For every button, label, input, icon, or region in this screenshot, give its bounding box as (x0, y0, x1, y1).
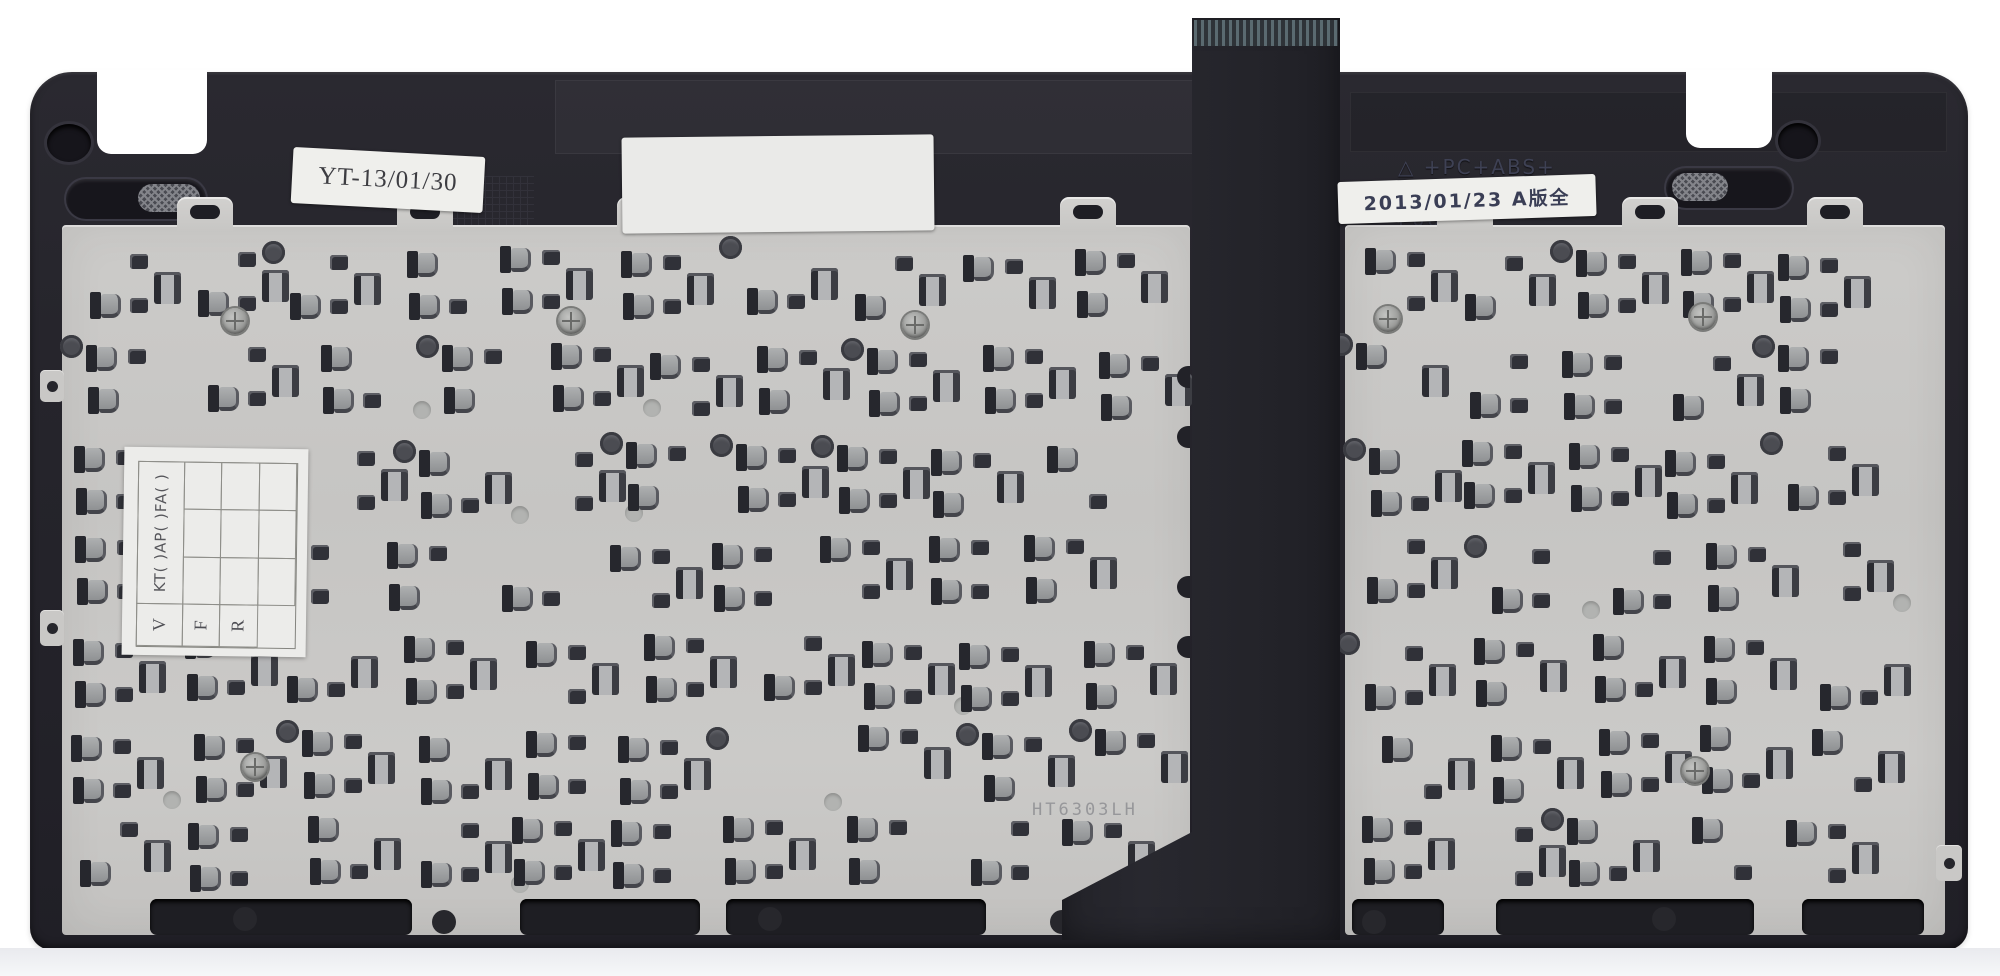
plate-hole (485, 472, 512, 504)
plate-hole (1024, 737, 1042, 752)
plate-hole (839, 487, 873, 515)
plate-hole (196, 776, 230, 804)
plate-hole (1852, 842, 1879, 874)
plate-hole (421, 861, 455, 889)
plate-hole (1077, 291, 1111, 319)
plate-hole (248, 347, 266, 362)
plate-hole (1141, 356, 1159, 371)
plate-hole (1048, 755, 1075, 787)
plate-hole (1075, 249, 1109, 277)
plate-rivet (841, 338, 864, 361)
plate-hole (551, 343, 585, 371)
plate-hole (971, 584, 989, 599)
plate-hole (444, 387, 478, 415)
plate-hole (73, 777, 107, 805)
plate-hole (1780, 296, 1814, 324)
plate-hole (668, 446, 686, 461)
plate-hole (1424, 784, 1442, 799)
plate-hole (754, 591, 772, 606)
plate-rivet (956, 723, 979, 746)
plate-hole (610, 545, 644, 573)
plate-hole (823, 368, 850, 400)
plate-hole (1611, 491, 1629, 506)
plate-hole (692, 401, 710, 416)
plate-hole (1001, 647, 1019, 662)
plate-hole (526, 731, 560, 759)
plate-hole (144, 840, 171, 872)
plate-hole (1633, 840, 1660, 872)
plate-hole (867, 348, 901, 376)
plate-hole (1778, 345, 1812, 373)
plate-hole (900, 729, 918, 744)
plate-hole (997, 471, 1024, 503)
plate-hole (272, 365, 299, 397)
plate-hole (86, 345, 120, 373)
plate-hole (1364, 858, 1398, 886)
plate-hole (1723, 297, 1741, 312)
date-code-sticker: YT-13/01/30 (291, 147, 486, 213)
plate-dimple (1893, 594, 1911, 612)
plate-hole (984, 775, 1018, 803)
plate-hole (304, 772, 338, 800)
plate-hole (1713, 356, 1731, 371)
plate-hole (409, 293, 443, 321)
plate-hole (1820, 349, 1838, 364)
recycle-triangle-icon: △ (1398, 155, 1415, 179)
plate-hole (1653, 550, 1671, 565)
plate-rivet (1760, 432, 1783, 455)
lug-hole (47, 623, 58, 634)
plate-hole (80, 860, 114, 888)
plate-hole (139, 661, 166, 693)
plate-hole (290, 293, 324, 321)
plate-hole (514, 859, 548, 887)
plate-hole (1005, 259, 1023, 274)
frame-seam (1350, 92, 1947, 152)
plate-hole (130, 254, 148, 269)
latch-assembly-right (1666, 168, 1792, 208)
plate-hole (323, 387, 357, 415)
plate-hole (1737, 374, 1764, 406)
plate-hole (971, 540, 989, 555)
plate-hole (971, 859, 1005, 887)
plate-hole (738, 486, 772, 514)
plate-hole (461, 784, 479, 799)
plate-hole (1562, 351, 1596, 379)
plate-hole (1557, 757, 1584, 789)
plate-hole (820, 536, 854, 564)
plate-hole (1742, 773, 1760, 788)
plate-hole (76, 488, 110, 516)
foot-dot (1362, 910, 1386, 934)
plate-hole (1860, 690, 1878, 705)
plate-dimple (511, 506, 529, 524)
screw-head (558, 308, 584, 334)
plate-hole (330, 299, 348, 314)
plate-rivet (1069, 719, 1092, 742)
plate-hole (75, 681, 109, 709)
plate-hole (1867, 560, 1894, 592)
plate-hole (1772, 565, 1799, 597)
plate-hole (1024, 535, 1058, 563)
plate-hole (973, 453, 991, 468)
plate-hole (1025, 393, 1043, 408)
plate-hole (1407, 296, 1425, 311)
plate-hole (1642, 272, 1669, 304)
plate-hole (1356, 343, 1390, 371)
tab-slot (1820, 205, 1850, 219)
qc-grid-cell (257, 557, 296, 606)
plate-hole (1611, 447, 1629, 462)
plate-hole (931, 449, 965, 477)
hinge-hole-left (47, 124, 91, 162)
plate-hole (933, 491, 967, 519)
plate-rivet (1550, 240, 1573, 263)
plate-hole (924, 747, 951, 779)
plate-hole (1515, 871, 1533, 886)
plate-hole (787, 294, 805, 309)
plate-hole (1476, 680, 1510, 708)
plate-hole (1653, 594, 1671, 609)
plate-hole (828, 654, 855, 686)
screw-head (1375, 306, 1401, 332)
qc-grid-cell (221, 462, 260, 511)
plate-hole (1641, 777, 1659, 792)
qc-grid-cell (220, 509, 259, 558)
plate-rivet (706, 727, 729, 750)
plate-hole (1448, 758, 1475, 790)
plate-hole (802, 466, 829, 498)
plate-hole (404, 636, 438, 664)
foot-dot (432, 910, 456, 934)
plate-hole (374, 838, 401, 870)
plate-hole (1464, 482, 1498, 510)
plate-rivet (1464, 535, 1487, 558)
plate-hole (1407, 252, 1425, 267)
etched-part-code: HT6303LH (1032, 800, 1138, 820)
plate-hole (1141, 271, 1168, 303)
plate-tab (1807, 197, 1863, 231)
plate-hole (1731, 472, 1758, 504)
plate-hole (1820, 684, 1854, 712)
plate-hole (446, 684, 464, 699)
plate-hole (406, 678, 440, 706)
plate-hole (963, 255, 997, 283)
plate-dimple (824, 793, 842, 811)
plate-hole (919, 274, 946, 306)
plate-rivet (60, 335, 83, 358)
plate-hole (311, 589, 329, 604)
plate-rivet (276, 720, 299, 743)
plate-hole (684, 758, 711, 790)
plate-hole (1635, 682, 1653, 697)
plate-hole (904, 689, 922, 704)
plate-hole (137, 757, 164, 789)
plate-hole (568, 735, 586, 750)
plate-hole (650, 353, 684, 381)
plate-hole (1492, 587, 1526, 615)
plate-hole (528, 773, 562, 801)
qc-grid-sticker: KT( )AP( )FA( ) V F R (122, 447, 309, 658)
plate-hole (187, 674, 221, 702)
plate-hole (858, 725, 892, 753)
plate-hole (692, 357, 710, 372)
plate-tab (1060, 197, 1116, 231)
plate-rivet (710, 434, 733, 457)
tab-slot (1635, 205, 1665, 219)
plate-hole (115, 687, 133, 702)
plate-hole (862, 540, 880, 555)
plate-hole (90, 292, 124, 320)
qc-grid-cell (258, 463, 297, 512)
plate-rivet (1541, 808, 1564, 831)
plate-hole (262, 270, 289, 302)
plate-hole (799, 350, 817, 365)
plate-hole (578, 839, 605, 871)
plate-hole (227, 680, 245, 695)
plate-hole (961, 685, 995, 713)
plate-rivet (393, 440, 416, 463)
plate-hole (592, 663, 619, 695)
qc-grid-row-label: R (219, 604, 258, 648)
plate-hole (764, 674, 798, 702)
plate-hole (236, 738, 254, 753)
foot-dot (758, 907, 782, 931)
plate-hole (575, 496, 593, 511)
plate-hole (1788, 484, 1822, 512)
plate-hole (1747, 271, 1774, 303)
plate-hole (1026, 577, 1060, 605)
plate-hole (1843, 586, 1861, 601)
qc-grid-cell (258, 510, 297, 559)
plate-hole (1529, 274, 1556, 306)
plate-hole (1104, 823, 1122, 838)
plate-hole (350, 864, 368, 879)
keyboard-backplate-photo: △ +PC+ABS+ LG-5001 KSLS v1 P06X-1 HT6303… (0, 0, 2000, 976)
plate-hole (904, 645, 922, 660)
plate-hole (357, 495, 375, 510)
plate-hole (1362, 816, 1396, 844)
plate-hole (1667, 492, 1701, 520)
qc-grid-row-label: V (136, 603, 184, 647)
plate-hole (1844, 276, 1871, 308)
plate-hole (985, 387, 1019, 415)
plate-hole (1593, 634, 1627, 662)
plate-hole (1510, 354, 1528, 369)
plate-hole (251, 654, 278, 686)
plate-hole (75, 536, 109, 564)
plate-hole (1828, 446, 1846, 461)
plate-hole (1516, 642, 1534, 657)
plate-hole (903, 467, 930, 499)
plate-hole (1704, 636, 1738, 664)
plate-hole (1820, 258, 1838, 273)
plate-hole (1828, 868, 1846, 883)
plate-hole (1734, 865, 1752, 880)
plate-hole (238, 252, 256, 267)
plate-hole (1431, 270, 1458, 302)
plate-hole (618, 736, 652, 764)
plate-hole (1576, 250, 1610, 278)
plate-hole (676, 567, 703, 599)
plate-hole (931, 578, 965, 606)
plate-hole (1820, 302, 1838, 317)
plate-hole (1778, 254, 1812, 282)
plate-hole (1852, 464, 1879, 496)
plate-hole (879, 449, 897, 464)
plate-hole (593, 391, 611, 406)
plate-hole (1095, 729, 1129, 757)
plate-hole (113, 783, 131, 798)
plate-hole (236, 782, 254, 797)
plate-hole (621, 251, 655, 279)
metal-plate-right (1345, 225, 1945, 935)
plate-hole (1569, 443, 1603, 471)
plate-rivet (1343, 438, 1366, 461)
plate-hole (1161, 751, 1188, 783)
plate-hole (461, 498, 479, 513)
plate-hole (1367, 577, 1401, 605)
plate-hole (1681, 249, 1715, 277)
qc-grid-cell (183, 509, 222, 558)
plate-hole (804, 636, 822, 651)
plate-rivet (600, 432, 623, 455)
plate-hole (188, 823, 222, 851)
plate-hole (864, 683, 898, 711)
plate-hole (765, 820, 783, 835)
plate-hole (1540, 660, 1567, 692)
plate-hole (1429, 664, 1456, 696)
qc-grid: KT( )AP( )FA( ) V F R (136, 461, 299, 649)
plate-hole (1532, 593, 1550, 608)
latch-mesh-right (1672, 173, 1728, 201)
plate-hole (1641, 733, 1659, 748)
plate-hole (725, 858, 759, 886)
plate-hole (330, 255, 348, 270)
plate-hole (1411, 496, 1429, 511)
plate-hole (1504, 444, 1522, 459)
plate-hole (1405, 690, 1423, 705)
hinge-hole-right (1778, 123, 1818, 159)
screw-head (222, 308, 248, 334)
plate-hole (542, 294, 560, 309)
plate-hole (1404, 820, 1422, 835)
photo-bottom-shadow (0, 948, 2000, 976)
plate-hole (623, 293, 657, 321)
plate-hole (593, 347, 611, 362)
plate-hole (344, 778, 362, 793)
plate-hole (208, 385, 242, 413)
plate-hole (929, 536, 963, 564)
plate-tab (177, 197, 233, 231)
plate-hole (1723, 253, 1741, 268)
plate-hole (1673, 394, 1707, 422)
plate-dimple (643, 399, 661, 417)
plate-hole (461, 867, 479, 882)
plate-hole (1609, 866, 1627, 881)
plate-hole (1700, 725, 1734, 753)
lug-hole (47, 381, 58, 392)
hinge-notch-right (1686, 70, 1772, 148)
plate-hole (909, 396, 927, 411)
qc-grid-header: KT( )AP( )FA( ) (136, 461, 185, 605)
plate-hole (613, 862, 647, 890)
plate-hole (575, 452, 593, 467)
plate-tab (1622, 197, 1678, 231)
plate-hole (628, 484, 662, 512)
plate-hole (620, 778, 654, 806)
plate-hole (1766, 747, 1793, 779)
plate-hole (1532, 549, 1550, 564)
plate-hole (1365, 684, 1399, 712)
plate-hole (1086, 683, 1120, 711)
plate-hole (1049, 367, 1076, 399)
plate-hole (663, 255, 681, 270)
plate-hole (287, 676, 321, 704)
plate-hole (354, 273, 381, 305)
plate-hole (230, 827, 248, 842)
plate-hole (502, 585, 536, 613)
plate-hole (512, 817, 546, 845)
foot-dot (1652, 907, 1676, 931)
plate-hole (847, 816, 881, 844)
foot-dot (233, 907, 257, 931)
plate-hole (327, 682, 345, 697)
plate-hole (502, 288, 536, 316)
tab-slot (190, 205, 220, 219)
plate-hole (660, 784, 678, 799)
plate-hole (1089, 494, 1107, 509)
plate-hole (568, 779, 586, 794)
plate-hole (1569, 860, 1603, 888)
plate-hole (553, 385, 587, 413)
bottom-slot (150, 899, 412, 935)
plate-hole (754, 547, 772, 562)
plate-hole (154, 272, 181, 304)
plate-hole (500, 246, 534, 274)
plate-hole (1090, 557, 1117, 589)
plate-hole (311, 545, 329, 560)
plate-hole (869, 390, 903, 418)
bottom-slot (1802, 899, 1924, 935)
plate-hole (1770, 658, 1797, 690)
plate-hole (1369, 448, 1403, 476)
screw-head (1682, 758, 1708, 784)
qc-grid-cell (184, 462, 223, 511)
plate-hole (1533, 739, 1551, 754)
plate-hole (1828, 824, 1846, 839)
plate-hole (895, 256, 913, 271)
plate-hole (1707, 498, 1725, 513)
plate-rivet (1337, 632, 1360, 655)
plate-hole (308, 816, 342, 844)
plate-hole (484, 349, 502, 364)
plate-hole (1746, 640, 1764, 655)
plate-hole (837, 445, 871, 473)
plate-hole (1025, 665, 1052, 697)
plate-hole (1659, 656, 1686, 688)
plate-dimple (163, 791, 181, 809)
plate-hole (1465, 294, 1499, 322)
revision-sticker: 2013/01/23 A版全 (1337, 174, 1596, 224)
plate-hole (1854, 777, 1872, 792)
plate-hole (566, 268, 593, 300)
plate-hole (526, 641, 560, 669)
plate-hole (1528, 462, 1555, 494)
plate-hole (660, 740, 678, 755)
plate-hole (778, 448, 796, 463)
plate-hole (652, 593, 670, 608)
